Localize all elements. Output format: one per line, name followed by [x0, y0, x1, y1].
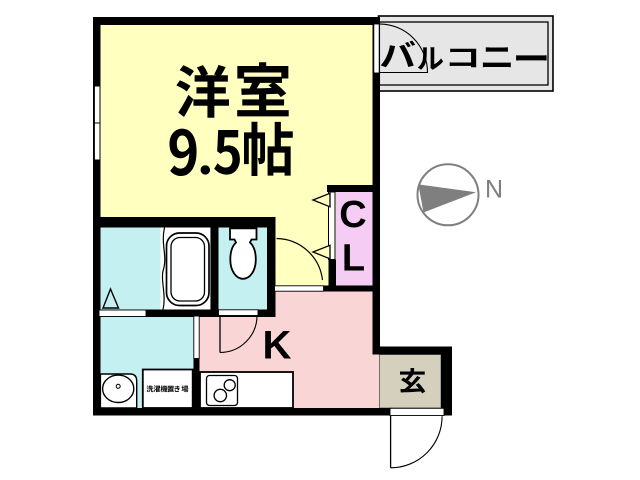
svg-text:C: C [339, 194, 366, 236]
svg-text:L: L [342, 238, 365, 280]
svg-text:K: K [263, 324, 292, 368]
svg-text:N: N [485, 176, 503, 204]
